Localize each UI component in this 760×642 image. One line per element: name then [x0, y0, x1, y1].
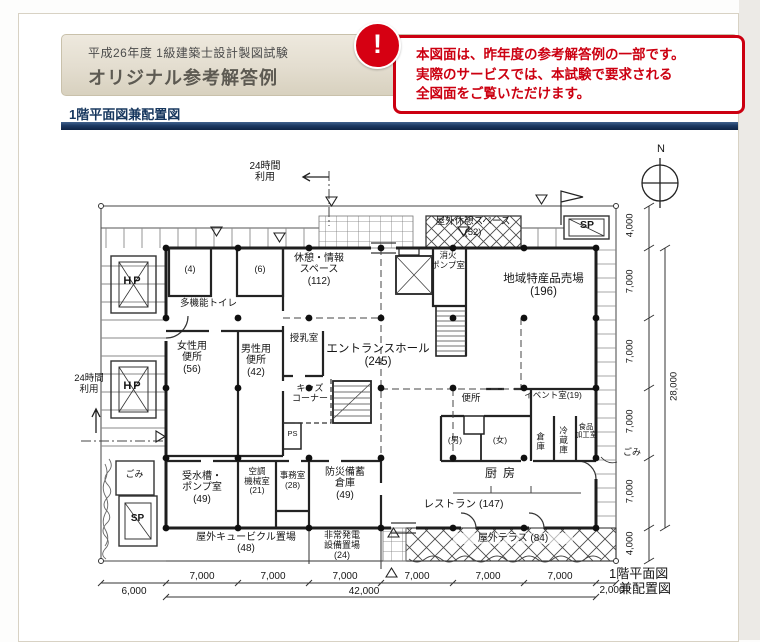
north-compass-icon [642, 158, 678, 208]
room-label-rest-info: 休憩・情報スペース(112) [283, 253, 355, 287]
notice-box: 本図面は、昨年度の参考解答例の一部です。 実際のサービスでは、本試験で要求される… [393, 35, 745, 114]
room-label-refrigerator: 冷蔵庫 [558, 419, 568, 461]
floor-plan-drawing [61, 131, 738, 639]
room-label-multi-toilet-left: (4) [171, 264, 209, 274]
trash-mark-left: ごみ [118, 469, 151, 479]
room-label-kids: キッズコーナー [285, 383, 335, 403]
room-label-local-products: 地域特産品売場(196) [486, 273, 601, 299]
dim-right-total: 28,000 [670, 359, 681, 413]
dim-bottom: 7,000 [392, 571, 442, 582]
room-label-cubicle-yard: 屋外キュービクル置場(48) [176, 532, 316, 555]
dim-bottom: 7,000 [320, 571, 370, 582]
sp-mark-top: SP [569, 220, 605, 232]
room-label-entrance-hall: エントランスホール(245) [313, 343, 443, 369]
room-label-office: 事務室(28) [275, 471, 310, 490]
arrow-24h-left [92, 409, 100, 433]
planting-scribble [103, 459, 112, 559]
room-label-hvac: 空調機械室(21) [239, 467, 275, 496]
room-label-ps: PS [284, 430, 301, 438]
sp-mark-left: SP [121, 513, 154, 524]
dim-bottom: 7,000 [248, 571, 298, 582]
dim-bottom-total: 42,000 [329, 586, 399, 597]
room-label-fire-pump: 消火ポンプ室 [427, 251, 469, 270]
dim-right: 7,000 [626, 256, 637, 306]
north-label: N [651, 143, 671, 155]
dim-bottom: 7,000 [535, 571, 585, 582]
room-label-disaster-storage: 防災備蓄倉庫(49) [311, 467, 379, 501]
room-label-toilet-female: (女) [485, 436, 515, 446]
dim-right: 7,000 [626, 396, 637, 446]
room-label-multi-toilet-right: (6) [241, 264, 279, 274]
hp-mark: HP [113, 380, 153, 392]
dim-right: 7,000 [626, 326, 637, 376]
room-label-toilet: 便所 [451, 394, 491, 405]
dim-bottom: 2,000 [585, 585, 639, 596]
note-24h-left: 24時間利用 [69, 374, 109, 395]
dim-right: 4,000 [626, 200, 637, 250]
notice-line: 本図面は、昨年度の参考解答例の一部です。 [416, 45, 734, 65]
room-label-storage: 倉庫 [535, 423, 545, 459]
dim-bottom: 6,000 [107, 586, 161, 597]
room-label-mens-toilet: 男性用便所(42) [235, 344, 277, 378]
room-label-generator-yard: 非常発電設備置場(24) [311, 530, 373, 560]
corner-markers [99, 204, 619, 564]
room-label-outdoor-rest: 屋外休憩スペース(52) [423, 217, 523, 238]
room-label-event: イベント室(19) [511, 391, 595, 401]
arrow-24h-top [303, 173, 329, 181]
trash-note-right: ごみ [617, 447, 647, 457]
content-card: 平成26年度 1級建築士設計製図試験 オリジナル参考解答例 1階平面図兼配置図 … [18, 13, 739, 642]
exclamation-icon: ! [354, 22, 401, 69]
section-label: 1階平面図兼配置図 [69, 104, 180, 123]
dim-right: 7,000 [626, 466, 637, 516]
room-label-terrace: 屋外テラス (84) [453, 533, 573, 544]
site-outline [101, 206, 616, 561]
section-divider-bar [61, 122, 738, 130]
room-label-multi-toilet: 多機能トイレ [171, 299, 246, 310]
notice-line: 全図面をご覧いただけます。 [416, 84, 734, 104]
room-label-water-tank: 受水槽・ポンプ室(49) [171, 471, 233, 505]
dim-right: 4,000 [626, 518, 637, 568]
note-24h-top: 24時間利用 [241, 161, 289, 184]
dim-bottom: 7,000 [463, 571, 513, 582]
room-label-kitchen: 厨房 [473, 467, 533, 481]
notice-line: 実際のサービスでは、本試験で要求される [416, 65, 734, 85]
room-label-food-processing: 食品加工室 [573, 423, 599, 440]
dim-bottom: 7,000 [177, 571, 227, 582]
room-label-womens-toilet: 女性用便所(56) [169, 341, 215, 375]
floor-plan-area: 屋外休憩スペース(52) SP 消火ポンプ室 地域特産品売場(196) (4) … [61, 131, 738, 639]
room-label-toilet-male: (男) [440, 436, 470, 446]
hp-mark: HP [113, 275, 153, 287]
room-label-restaurant: レストラン (147) [406, 499, 521, 511]
